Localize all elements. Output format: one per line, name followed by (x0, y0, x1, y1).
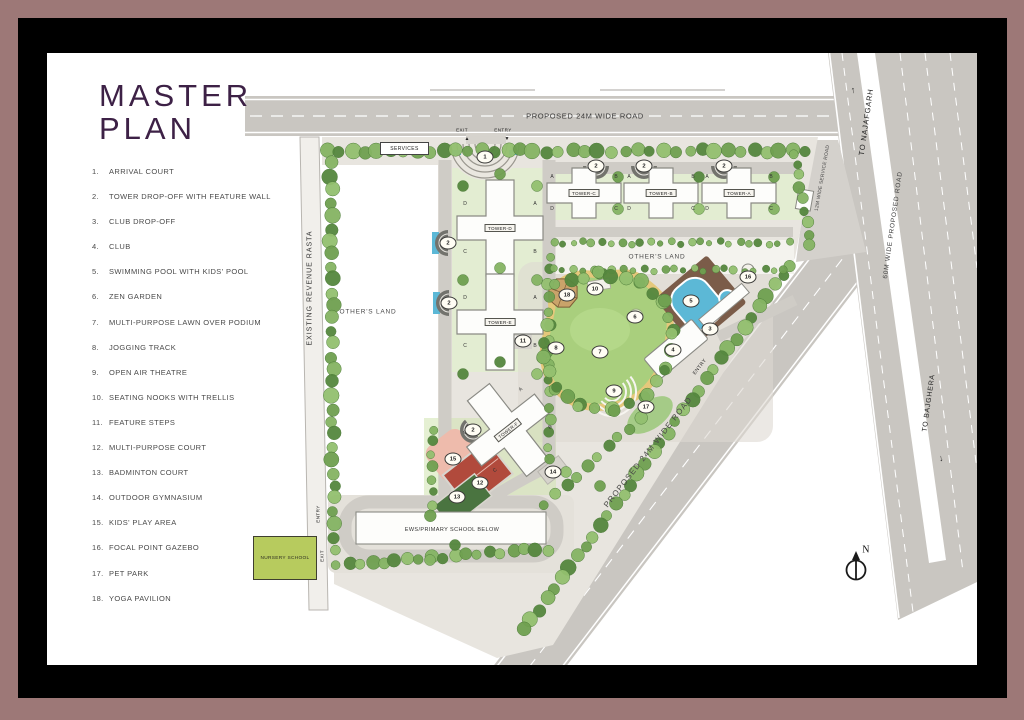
tree (571, 549, 584, 562)
tree (552, 382, 562, 392)
tree (794, 161, 802, 169)
tree (605, 146, 617, 158)
tree (449, 143, 463, 157)
tree (545, 414, 556, 425)
tree (430, 426, 438, 434)
tree (544, 308, 553, 317)
tree (712, 265, 720, 273)
tree (800, 207, 809, 216)
tree (624, 424, 635, 435)
tree (489, 146, 501, 158)
tree (544, 403, 553, 412)
tree (323, 388, 339, 404)
tree (384, 143, 398, 157)
tree (668, 238, 675, 245)
tree (641, 265, 648, 272)
tree (543, 365, 556, 378)
tree (670, 417, 680, 427)
tree (424, 147, 436, 159)
tree (604, 440, 616, 452)
tree (324, 452, 339, 467)
tree (429, 488, 437, 496)
tree (495, 169, 506, 180)
tree (328, 532, 340, 544)
tree (766, 241, 773, 248)
tree (663, 427, 676, 440)
tree (589, 143, 604, 158)
tree (325, 246, 339, 260)
tree (624, 398, 635, 409)
tree (562, 479, 574, 491)
white-page (47, 53, 977, 665)
tree (620, 272, 634, 286)
tree (551, 238, 559, 246)
tree (658, 294, 671, 307)
tree (701, 371, 714, 384)
tree (325, 156, 338, 169)
zen-garden (629, 309, 643, 323)
tree (706, 143, 722, 159)
tree (367, 555, 381, 569)
tree (603, 269, 618, 284)
tree (428, 501, 438, 511)
tree (326, 182, 340, 196)
tree (629, 466, 645, 482)
tree (737, 238, 745, 246)
tree (662, 266, 670, 274)
tree (330, 545, 340, 555)
tree (539, 501, 548, 510)
tree (608, 241, 614, 247)
tree (582, 460, 595, 473)
north-arrow-icon (847, 551, 866, 580)
tree (725, 241, 731, 247)
tree (753, 299, 767, 313)
tree (427, 451, 435, 459)
tree (401, 552, 413, 564)
tree (328, 490, 341, 503)
tree (779, 266, 787, 274)
tree (327, 516, 342, 531)
tree (427, 476, 436, 485)
tree (717, 238, 724, 245)
ews-school (356, 512, 546, 544)
tree (472, 550, 481, 559)
tree (629, 241, 636, 248)
tree (427, 461, 438, 472)
tree (612, 432, 622, 442)
tree (689, 238, 697, 246)
tree (330, 481, 341, 492)
tree (552, 146, 563, 157)
tree (621, 146, 632, 157)
tree (565, 273, 579, 287)
tree (803, 239, 815, 251)
tree (532, 369, 543, 380)
tree (327, 442, 338, 453)
tree (750, 268, 756, 274)
tree (545, 454, 555, 464)
tree (517, 622, 531, 636)
tree (657, 143, 672, 158)
tree (677, 241, 684, 248)
tree (599, 238, 607, 246)
tree (613, 172, 624, 183)
tree (326, 374, 339, 387)
tree (543, 545, 554, 556)
tree (793, 182, 805, 194)
tree (735, 146, 746, 157)
tree (587, 239, 595, 247)
tree (651, 268, 658, 275)
tree (632, 143, 646, 157)
tree (524, 143, 540, 159)
tree (327, 468, 339, 480)
tree (550, 488, 561, 499)
tree (789, 150, 798, 159)
tree (495, 549, 505, 559)
tree (368, 143, 384, 159)
tree (706, 240, 712, 246)
tree (550, 265, 557, 272)
tree (771, 143, 786, 158)
left-road (300, 137, 328, 610)
tree (544, 427, 554, 437)
tree (660, 365, 670, 375)
tree (458, 275, 469, 286)
tree (657, 241, 663, 247)
tree (729, 266, 737, 274)
tree (769, 172, 780, 183)
tree (538, 337, 549, 348)
site-plan (47, 53, 977, 665)
tree (571, 240, 577, 246)
tree (355, 559, 365, 569)
tree (413, 555, 423, 565)
tree (528, 543, 542, 557)
tree (541, 591, 555, 605)
tree (634, 273, 649, 288)
tree (666, 328, 678, 340)
poster: MASTER PLAN 1.ARRIVAL COURT2.TOWER DROP-… (0, 0, 1024, 720)
tree (327, 336, 340, 349)
tree (559, 241, 565, 247)
tree (571, 472, 581, 482)
tree (495, 263, 506, 274)
tree (561, 467, 572, 478)
tree (327, 362, 341, 376)
tree (738, 320, 754, 336)
tree (715, 351, 729, 365)
tree (325, 208, 341, 224)
tree (663, 312, 674, 323)
tree (331, 561, 340, 570)
tree (428, 436, 438, 446)
top-road (245, 90, 848, 136)
tree (458, 369, 469, 380)
tree (802, 216, 814, 228)
tree (670, 265, 677, 272)
tree (608, 405, 620, 417)
tree (748, 143, 762, 157)
tree (578, 273, 589, 284)
tree (794, 169, 804, 179)
tree (648, 238, 655, 245)
tree (320, 143, 335, 158)
tree (742, 269, 749, 276)
tree (495, 357, 506, 368)
tree (613, 204, 624, 215)
tree (586, 532, 598, 544)
tree (327, 507, 337, 517)
tree (544, 444, 552, 452)
tree (559, 267, 565, 273)
tree (561, 389, 575, 403)
tree (460, 548, 472, 560)
tree (644, 146, 654, 156)
tree (677, 403, 690, 416)
tree (573, 401, 583, 411)
tree (721, 143, 735, 157)
tree (648, 445, 662, 459)
tree (580, 238, 587, 245)
tree (462, 146, 472, 156)
tree (630, 268, 636, 274)
tree (771, 268, 777, 274)
tree (327, 404, 339, 416)
tree (786, 238, 793, 245)
tree (636, 239, 644, 247)
tree (595, 481, 606, 492)
tree (680, 268, 686, 274)
tree (592, 453, 601, 462)
tree (694, 172, 705, 183)
tree (476, 143, 489, 156)
tree (326, 326, 336, 336)
highway-road (828, 53, 977, 620)
tree (691, 265, 698, 272)
tree (635, 412, 648, 425)
tree (547, 253, 555, 261)
tree (327, 298, 342, 313)
tree (800, 146, 811, 157)
tree (589, 403, 600, 414)
tree (450, 540, 461, 551)
tree (532, 181, 543, 192)
tree (398, 146, 409, 157)
tree (425, 555, 436, 566)
tree (541, 147, 554, 160)
tree (769, 204, 780, 215)
tree (541, 318, 554, 331)
tree (686, 146, 696, 156)
tree (327, 426, 341, 440)
tree (537, 350, 551, 364)
tree (593, 518, 608, 533)
tree (550, 279, 560, 289)
tree (532, 275, 543, 286)
tree (544, 291, 555, 302)
tree (410, 143, 425, 158)
tree (762, 265, 769, 272)
tree (797, 193, 808, 204)
tree (325, 198, 336, 209)
tree (694, 204, 705, 215)
tree (345, 143, 361, 159)
tree (325, 310, 338, 323)
tree (774, 241, 780, 247)
tree (664, 343, 678, 357)
tree (555, 570, 570, 585)
tree (570, 265, 578, 273)
tree (650, 375, 662, 387)
tree (754, 239, 762, 247)
tree (424, 510, 436, 522)
tree (697, 238, 704, 245)
tree (325, 271, 340, 286)
tree (700, 268, 706, 274)
tree (484, 546, 496, 558)
tree (769, 278, 782, 291)
tree (458, 181, 469, 192)
tree (609, 497, 623, 511)
tree (670, 146, 682, 158)
tree (437, 553, 448, 564)
tree (745, 240, 752, 247)
tree (387, 554, 401, 568)
tree (619, 239, 627, 247)
tree (721, 265, 728, 272)
tree (641, 388, 655, 402)
